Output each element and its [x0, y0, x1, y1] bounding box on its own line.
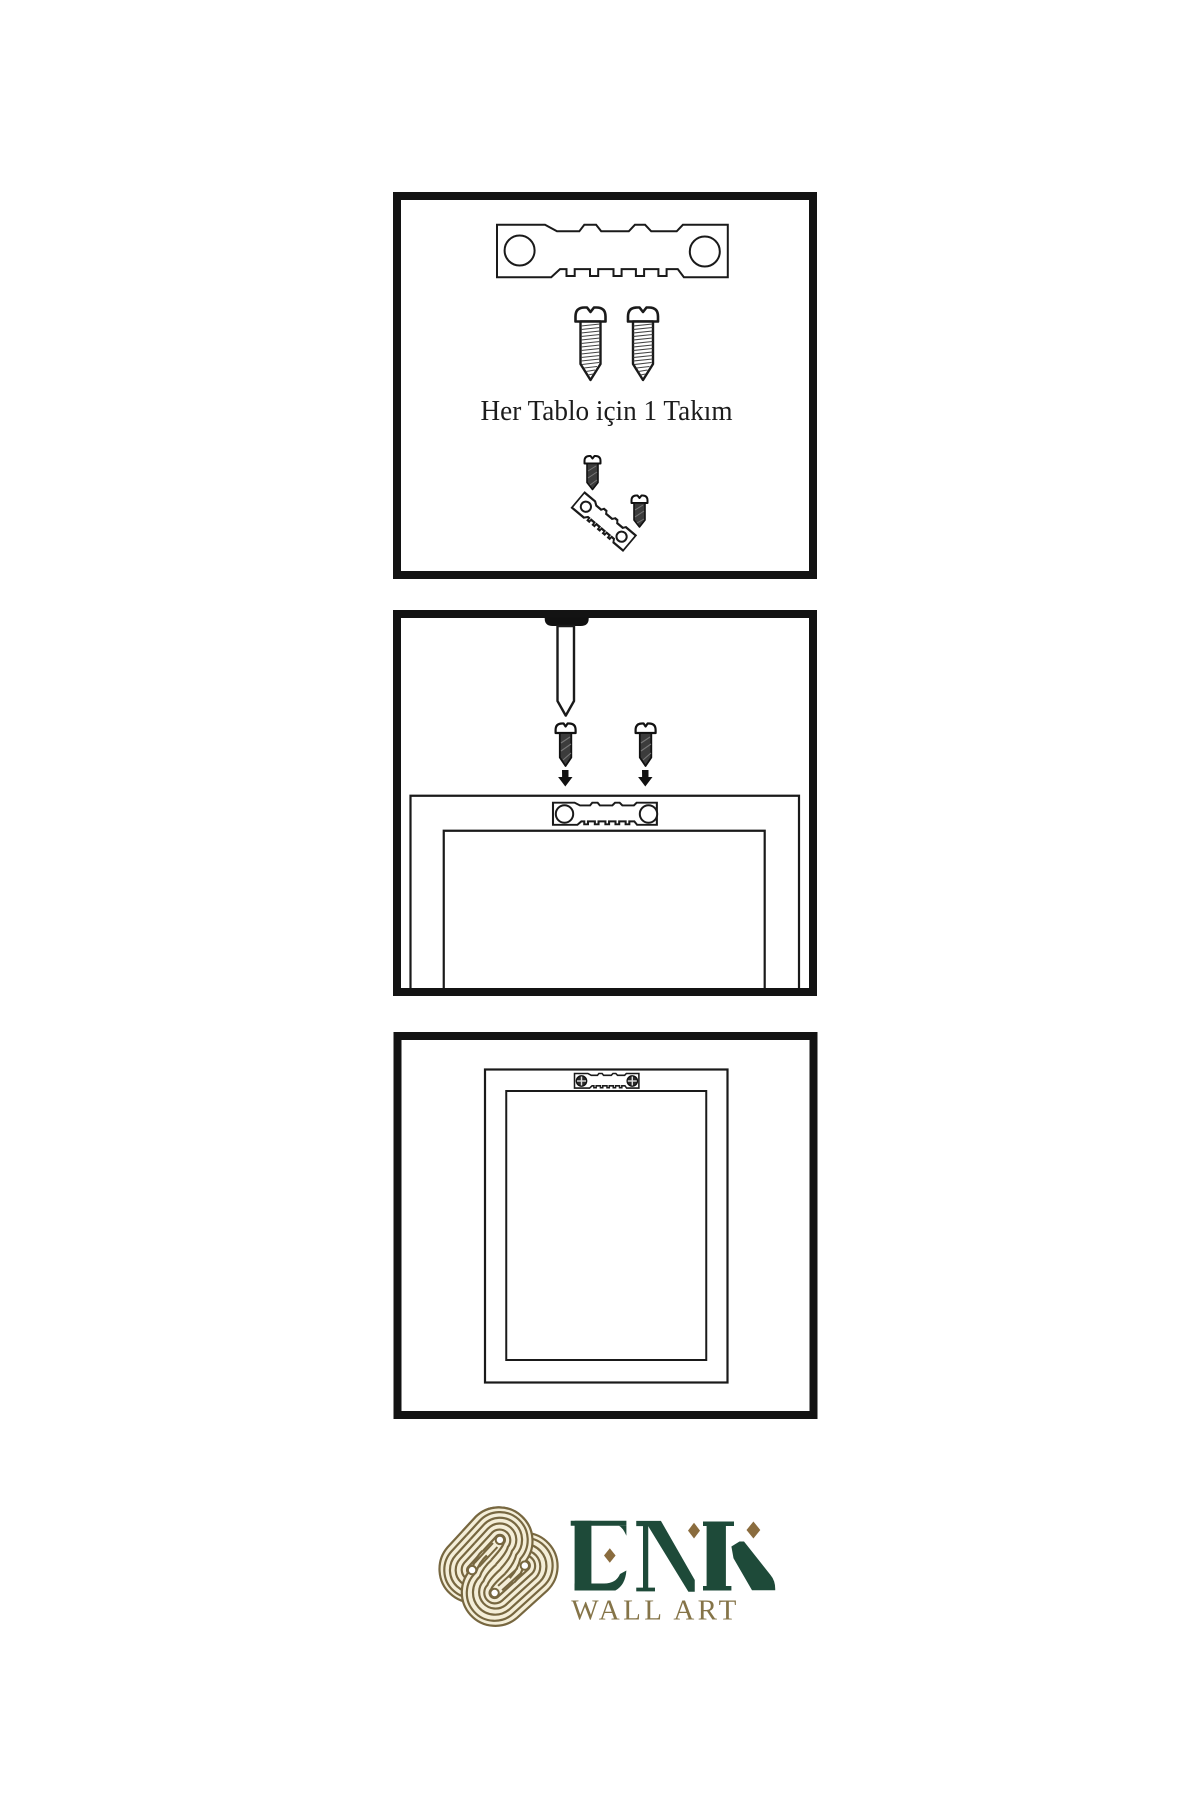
svg-text:WALL ART: WALL ART [571, 1595, 740, 1627]
svg-text:Her Tablo için 1 Takım: Her Tablo için 1 Takım [481, 396, 733, 427]
